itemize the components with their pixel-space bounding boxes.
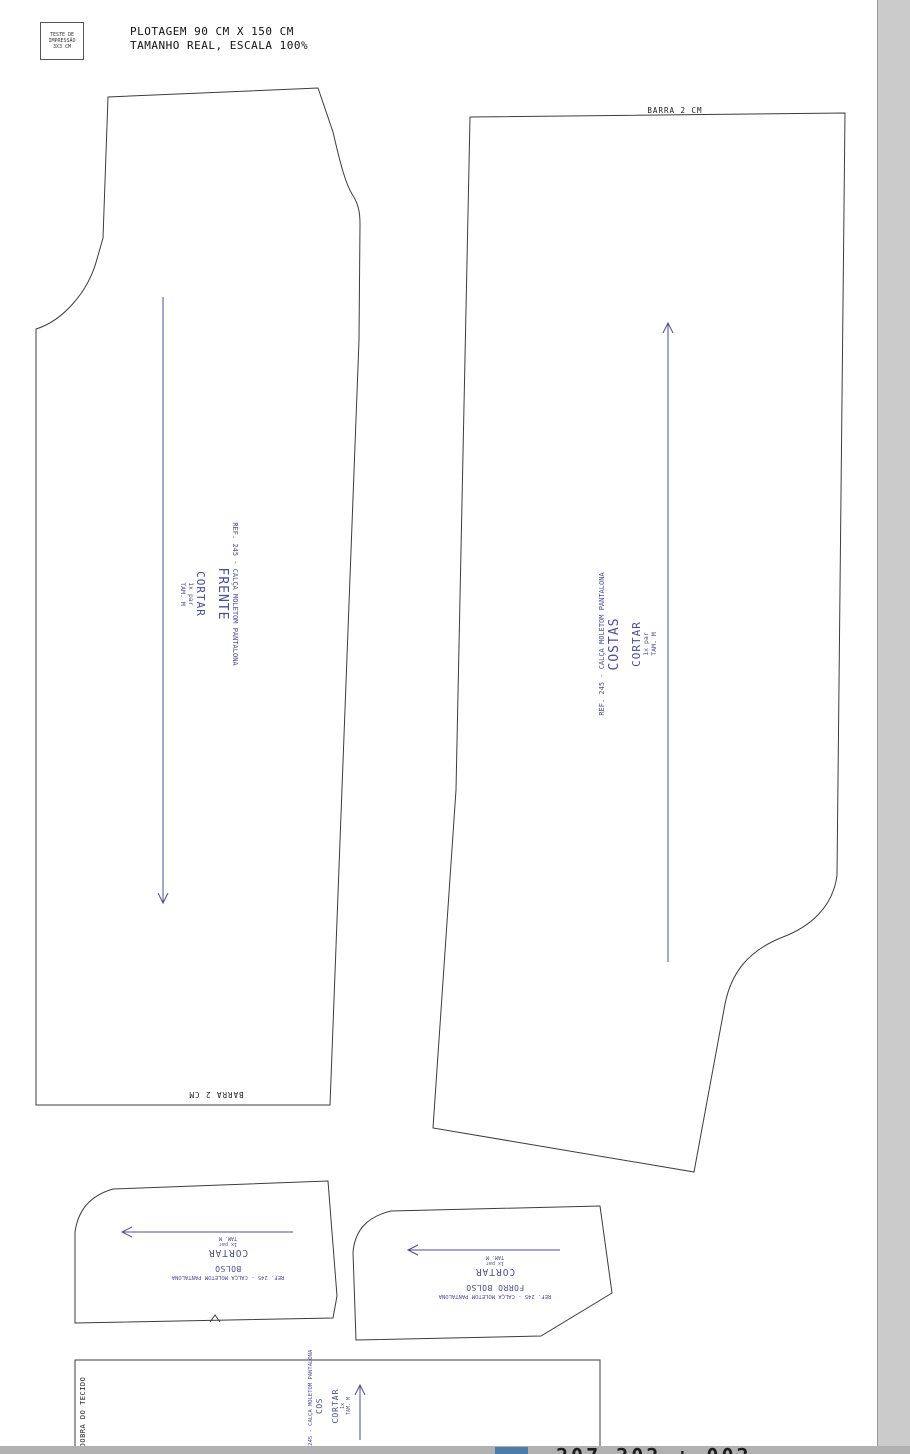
hem-mark-front: BARRA 2 CM xyxy=(181,1090,251,1099)
pocket-ref: REF. 245 - CALÇA MOLETOM PANTALONA xyxy=(172,1274,285,1281)
piece-label-pocket-lining: REF. 245 - CALÇA MOLETOM PANTALONA FORRO… xyxy=(405,1254,585,1300)
pocket-size: TAM. M xyxy=(219,1236,237,1242)
print-test-square: TESTE DE IMPRESSÃO 3X3 CM xyxy=(40,22,84,60)
pocket-cut: CORTAR xyxy=(208,1248,248,1258)
clipped-blue-swatch xyxy=(495,1447,528,1454)
plot-header: PLOTAGEM 90 CM X 150 CM TAMANHO REAL, ES… xyxy=(130,25,308,53)
piece-label-pocket: REF. 245 - CALÇA MOLETOM PANTALONA BOLSO… xyxy=(143,1232,313,1284)
front-size: TAM. M xyxy=(179,582,187,605)
pocket-lining-qty: 1x par xyxy=(486,1261,504,1267)
piece-label-waistband: REF. 245 - CALÇA MOLETOM PANTALONA COS C… xyxy=(300,1321,360,1454)
pocket-notch xyxy=(210,1315,220,1322)
pocket-lining-name: FORRO BOLSO xyxy=(466,1284,524,1293)
back-ref: REF. 245 - CALÇA MOLETOM PANTALONA xyxy=(598,572,607,715)
pocket-lining-cut: CORTAR xyxy=(475,1267,515,1277)
front-name: FRENTE xyxy=(215,568,230,621)
piece-label-back: REF. 245 - CALÇA MOLETOM PANTALONA COSTA… xyxy=(598,569,658,719)
waistband-size: TAM. M xyxy=(346,1397,352,1415)
waistband-name: COS xyxy=(315,1398,325,1414)
grainline-back-arrow xyxy=(663,323,673,962)
viewer-bottom-band xyxy=(0,1446,910,1454)
front-ref: REF. 245 - CALÇA MOLETOM PANTALONA xyxy=(230,522,239,665)
front-qty: 1x par xyxy=(187,582,195,605)
pocket-lining-ref: REF. 245 - CALÇA MOLETOM PANTALONA xyxy=(439,1293,552,1300)
pocket-name: BOLSO xyxy=(215,1265,242,1274)
fabric-fold-label: DOBRA DO TECIDO xyxy=(79,1367,89,1454)
grainline-front-arrow xyxy=(158,297,168,903)
viewer-right-margin xyxy=(877,0,910,1454)
plot-header-line2: TAMANHO REAL, ESCALA 100% xyxy=(130,39,308,53)
test-square-line3: 3X3 CM xyxy=(53,44,71,50)
piece-label-front: REF. 245 - CALÇA MOLETOM PANTALONA FRENT… xyxy=(179,519,239,669)
hem-mark-back: BARRA 2 CM xyxy=(640,106,710,115)
clipped-footer-text: 207 202 + 002 xyxy=(556,1444,752,1454)
front-cut: CORTAR xyxy=(194,571,206,617)
back-size: TAM. M xyxy=(651,632,659,655)
back-name: COSTAS xyxy=(607,618,622,671)
waistband-ref: REF. 245 - CALÇA MOLETOM PANTALONA xyxy=(308,1350,315,1454)
plot-header-line1: PLOTAGEM 90 CM X 150 CM xyxy=(130,25,308,39)
pocket-lining-size: TAM. M xyxy=(486,1255,504,1261)
waistband-cut: CORTAR xyxy=(331,1389,340,1424)
pattern-plot-page: TESTE DE IMPRESSÃO 3X3 CM PLOTAGEM 90 CM… xyxy=(0,0,910,1454)
pocket-qty: 1x par xyxy=(219,1242,237,1248)
pattern-outlines-layer xyxy=(0,0,910,1454)
